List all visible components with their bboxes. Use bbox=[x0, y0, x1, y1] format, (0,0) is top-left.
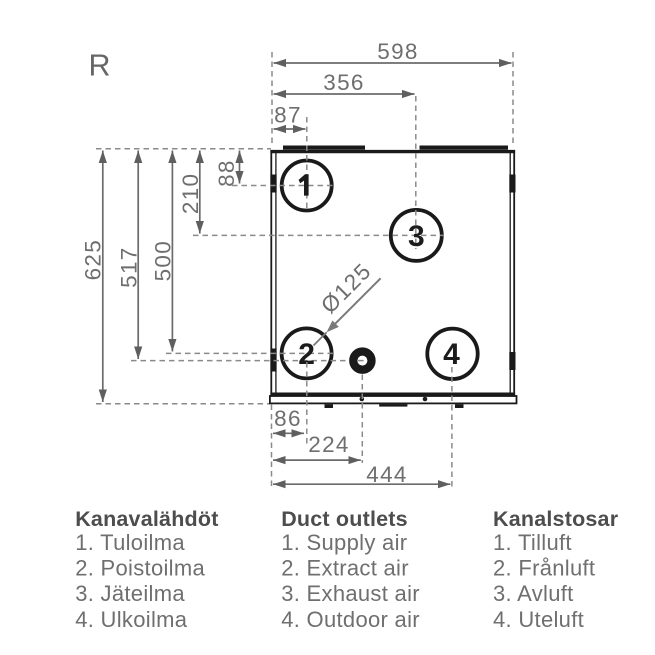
svg-text:1. Supply air: 1. Supply air bbox=[281, 530, 407, 555]
svg-text:2. Poistoilma: 2. Poistoilma bbox=[75, 556, 205, 581]
svg-text:3: 3 bbox=[408, 220, 425, 253]
svg-text:4: 4 bbox=[443, 338, 460, 371]
svg-text:R: R bbox=[89, 49, 111, 83]
svg-text:4. Ulkoilma: 4. Ulkoilma bbox=[75, 607, 188, 632]
svg-text:2. Frånluft: 2. Frånluft bbox=[493, 556, 595, 581]
svg-text:3. Jäteilma: 3. Jäteilma bbox=[75, 581, 185, 606]
svg-text:500: 500 bbox=[151, 240, 176, 281]
svg-text:625: 625 bbox=[80, 239, 105, 280]
svg-text:356: 356 bbox=[323, 70, 364, 95]
svg-text:88: 88 bbox=[214, 159, 239, 187]
svg-text:3. Exhaust air: 3. Exhaust air bbox=[281, 581, 420, 606]
svg-text:224: 224 bbox=[308, 432, 349, 457]
svg-text:Duct outlets: Duct outlets bbox=[281, 507, 408, 531]
svg-text:1. Tuloilma: 1. Tuloilma bbox=[75, 530, 185, 555]
svg-text:4. Uteluft: 4. Uteluft bbox=[493, 607, 584, 632]
svg-text:598: 598 bbox=[377, 39, 418, 64]
svg-text:Kanalstosar: Kanalstosar bbox=[493, 507, 619, 531]
svg-text:2. Extract air: 2. Extract air bbox=[281, 556, 409, 581]
svg-text:517: 517 bbox=[116, 246, 141, 287]
svg-text:3. Avluft: 3. Avluft bbox=[493, 581, 574, 606]
svg-text:87: 87 bbox=[274, 103, 302, 128]
svg-text:4. Outdoor air: 4. Outdoor air bbox=[281, 607, 420, 632]
svg-text:86: 86 bbox=[274, 406, 302, 431]
svg-text:Kanavalähdöt: Kanavalähdöt bbox=[75, 507, 218, 531]
svg-text:1. Tilluft: 1. Tilluft bbox=[493, 530, 572, 555]
svg-text:444: 444 bbox=[366, 462, 407, 487]
svg-text:210: 210 bbox=[178, 173, 203, 214]
